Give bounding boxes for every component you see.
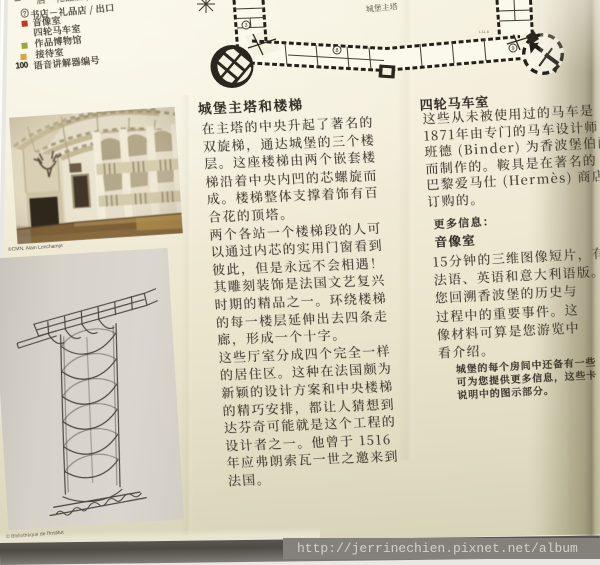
svg-text:9: 9 [511,46,514,52]
svg-text:L11-6: L11-6 [479,29,490,34]
svg-text:3: 3 [244,23,247,29]
svg-text:8: 8 [335,48,338,54]
svg-text:城堡主塔: 城堡主塔 [365,1,398,15]
